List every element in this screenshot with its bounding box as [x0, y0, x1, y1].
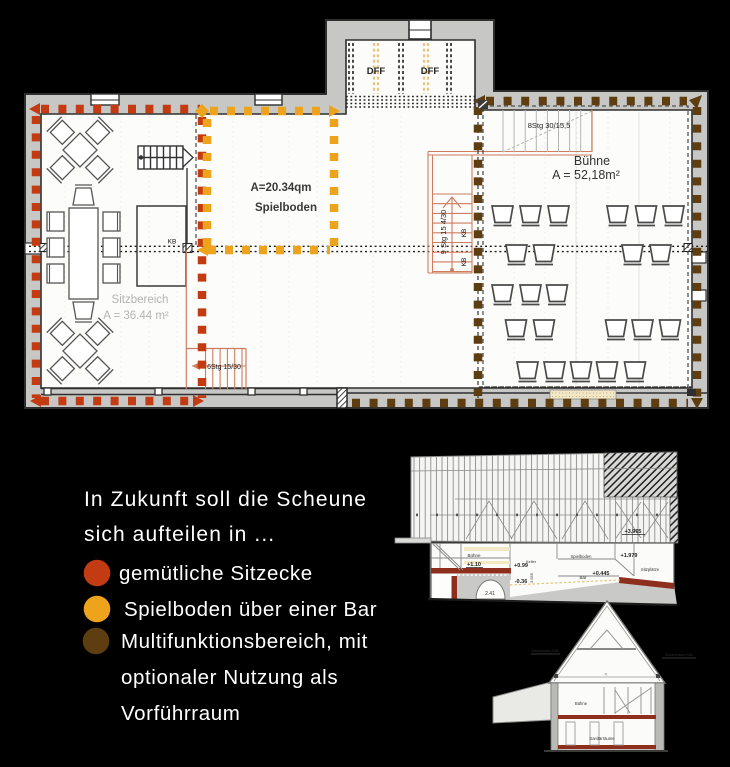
svg-text:Spielboden: Spielboden	[255, 202, 317, 214]
svg-text:optionaler Nutzung als: optionaler Nutzung als	[121, 666, 338, 689]
svg-text:gemütliche Sitzecke: gemütliche Sitzecke	[119, 562, 313, 585]
svg-text:Abstellraum höh: Abstellraum höh	[531, 649, 559, 653]
svg-text:DFF: DFF	[367, 66, 386, 77]
svg-text:KB: KB	[461, 258, 468, 267]
svg-text:A = 36.44 m²: A = 36.44 m²	[103, 310, 169, 322]
svg-text:Bühne: Bühne	[575, 701, 588, 706]
svg-text:Keller: Keller	[526, 559, 537, 564]
svg-text:Bühne: Bühne	[467, 553, 481, 558]
svg-text:3.555: 3.555	[529, 572, 534, 583]
svg-text:DFF: DFF	[421, 66, 440, 77]
svg-text:A = 52,18m²: A = 52,18m²	[552, 168, 620, 182]
svg-text:Bühne: Bühne	[574, 154, 610, 168]
svg-text:Abstellraum höh: Abstellraum höh	[665, 653, 693, 657]
svg-text:In Zukunft soll die Scheune: In Zukunft soll die Scheune	[84, 488, 367, 511]
svg-text:8Stg 30/15,5: 8Stg 30/15,5	[528, 121, 571, 130]
svg-text:A=20.34qm: A=20.34qm	[250, 182, 311, 194]
svg-text:Spielboden: Spielboden	[571, 554, 593, 559]
svg-text:Sanitärräume: Sanitärräume	[589, 736, 615, 741]
svg-text:KB: KB	[461, 229, 468, 238]
svg-text:sich aufteilen in ...: sich aufteilen in ...	[84, 523, 275, 546]
svg-text:9 Stg 15 4/30: 9 Stg 15 4/30	[439, 210, 448, 255]
svg-text:6Stg 15/30: 6Stg 15/30	[207, 364, 241, 371]
svg-text:Multifunktionsbereich, mit: Multifunktionsbereich, mit	[121, 630, 368, 653]
svg-text:+0.445: +0.445	[593, 571, 610, 577]
svg-text:-0.36: -0.36	[515, 579, 528, 585]
svg-text:KB: KB	[168, 239, 177, 246]
svg-text:Spielboden über einer Bar: Spielboden über einer Bar	[124, 598, 377, 621]
svg-text:≈: ≈	[605, 672, 608, 678]
svg-text:Sitzplätze: Sitzplätze	[641, 567, 660, 572]
svg-text:Bar: Bar	[579, 575, 587, 580]
svg-text:2.41: 2.41	[485, 591, 495, 597]
svg-text:Vorführraum: Vorführraum	[121, 702, 240, 725]
svg-text:+1.979: +1.979	[621, 553, 638, 559]
svg-text:Sitzbereich: Sitzbereich	[112, 294, 169, 306]
